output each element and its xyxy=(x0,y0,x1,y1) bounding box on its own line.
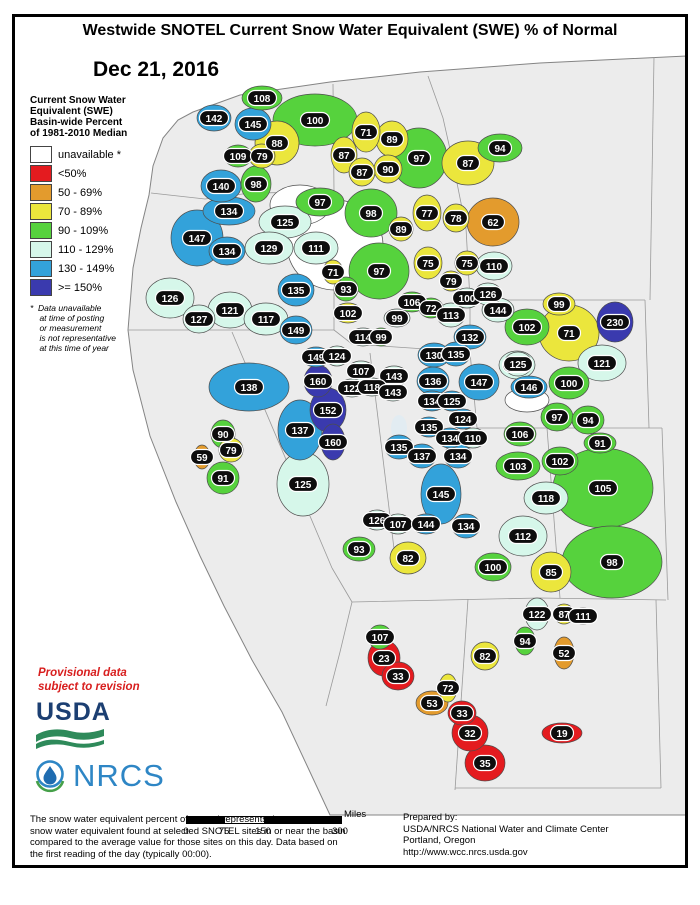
basin-badge: 100 xyxy=(555,376,584,391)
basin-badge: 100 xyxy=(479,560,508,575)
basin-badge: 98 xyxy=(601,555,624,570)
basin-percent-value: 33 xyxy=(456,709,468,720)
basin-percent-value: 121 xyxy=(594,359,611,370)
legend-title: Current Snow Water Equivalent (SWE) Basi… xyxy=(30,95,172,139)
basin-badge: 99 xyxy=(370,330,393,345)
basin-badge: 90 xyxy=(212,427,235,442)
basin-percent-value: 91 xyxy=(594,439,606,450)
legend-footnote: * Data unavailable at time of posting or… xyxy=(30,303,172,353)
basin-percent-value: 23 xyxy=(378,654,390,665)
basin-percent-value: 144 xyxy=(490,306,507,317)
basin-badge: 97 xyxy=(309,195,332,210)
basin-badge: 138 xyxy=(235,380,264,395)
basin-percent-value: 87 xyxy=(356,168,368,179)
basin-percent-value: 71 xyxy=(563,329,575,340)
basin-percent-value: 72 xyxy=(442,684,454,695)
legend-swatch xyxy=(30,222,52,239)
basin-badge: 35 xyxy=(474,756,497,771)
basin-percent-value: 97 xyxy=(373,267,385,278)
basin-badge: 71 xyxy=(355,125,378,140)
basin-badge: 146 xyxy=(515,380,544,395)
legend-swatch xyxy=(30,184,52,201)
basin-badge: 82 xyxy=(474,649,497,664)
basin-badge: 97 xyxy=(546,410,569,425)
basin-badge: 72 xyxy=(437,681,460,696)
basin-badge: 79 xyxy=(220,443,243,458)
map-date: Dec 21, 2016 xyxy=(93,58,219,82)
legend: Current Snow Water Equivalent (SWE) Basi… xyxy=(30,95,172,353)
basin-badge: 62 xyxy=(482,215,505,230)
legend-swatch xyxy=(30,241,52,258)
basin-badge: 125 xyxy=(289,477,318,492)
page-title: Westwide SNOTEL Current Snow Water Equiv… xyxy=(12,22,688,40)
basin-percent-value: 103 xyxy=(510,462,527,473)
legend-item-label: unavailable * xyxy=(58,149,121,161)
basin-badge: 102 xyxy=(513,320,542,335)
basin-badge: 137 xyxy=(286,423,315,438)
basin-badge: 144 xyxy=(412,517,441,532)
basin-percent-value: 100 xyxy=(485,563,502,574)
nrcs-logo: NRCS xyxy=(33,757,165,795)
basin-percent-value: 142 xyxy=(206,114,223,125)
basin-badge: 105 xyxy=(589,481,618,496)
basin-badge: 100 xyxy=(301,113,330,128)
basin-badge: 152 xyxy=(314,403,343,418)
footer-prepared-by: Prepared by: USDA/NRCS National Water an… xyxy=(403,812,609,858)
legend-item: unavailable * xyxy=(30,145,172,164)
basin-badge: 97 xyxy=(408,151,431,166)
basin-percent-value: 99 xyxy=(553,300,565,311)
basin-percent-value: 125 xyxy=(295,480,312,491)
basin-badge: 59 xyxy=(191,450,214,465)
basin-badge: 91 xyxy=(589,436,612,451)
basin-badge: 147 xyxy=(465,375,494,390)
basin-percent-value: 91 xyxy=(217,474,229,485)
basin-percent-value: 102 xyxy=(340,309,357,320)
basin-badge: 109 xyxy=(224,149,253,164)
basin-percent-value: 106 xyxy=(404,298,421,309)
basin-percent-value: 137 xyxy=(292,426,309,437)
basin-percent-value: 89 xyxy=(386,135,398,146)
basin-badge: 79 xyxy=(251,149,274,164)
basin-percent-value: 100 xyxy=(561,379,578,390)
basin-percent-value: 75 xyxy=(461,259,473,270)
basin-percent-value: 143 xyxy=(385,388,402,399)
basin-badge: 33 xyxy=(451,706,474,721)
basin-badge: 136 xyxy=(419,374,448,389)
basin-badge: 125 xyxy=(438,394,467,409)
basin-percent-value: 134 xyxy=(458,522,475,533)
basin-badge: 94 xyxy=(489,141,512,156)
legend-item-label: 110 - 129% xyxy=(58,244,113,256)
basin-percent-value: 93 xyxy=(353,545,365,556)
basin-badge: 102 xyxy=(546,454,575,469)
basin-percent-value: 87 xyxy=(462,159,474,170)
basin-badge: 79 xyxy=(440,274,463,289)
basin-percent-value: 138 xyxy=(241,383,258,394)
basin-badge: 98 xyxy=(245,177,268,192)
basin-badge: 147 xyxy=(183,231,212,246)
basin-badge: 126 xyxy=(474,287,503,302)
basin-percent-value: 144 xyxy=(418,520,435,531)
basin-percent-value: 93 xyxy=(340,285,352,296)
scale-unit-label: Miles xyxy=(344,809,366,820)
basin-percent-value: 62 xyxy=(487,218,499,229)
basin-percent-value: 149 xyxy=(288,326,305,337)
legend-item: 90 - 109% xyxy=(30,221,172,240)
basin-percent-value: 98 xyxy=(250,180,262,191)
basin-percent-value: 127 xyxy=(191,315,208,326)
basin-badge: 23 xyxy=(373,651,396,666)
basin-percent-value: 135 xyxy=(288,286,305,297)
basin-percent-value: 111 xyxy=(575,612,591,623)
basin-badge: 117 xyxy=(252,312,281,327)
basin-badge: 111 xyxy=(569,609,598,624)
basin-percent-value: 126 xyxy=(480,290,497,301)
basin-percent-value: 102 xyxy=(519,323,536,334)
basin-badge: 99 xyxy=(548,297,571,312)
basin-percent-value: 110 xyxy=(486,262,503,273)
basin-percent-value: 79 xyxy=(225,446,237,457)
basin-percent-value: 125 xyxy=(277,218,294,229)
basin-percent-value: 134 xyxy=(219,247,236,258)
basin-badge: 134 xyxy=(444,449,473,464)
basin-badge: 134 xyxy=(213,244,242,259)
basin-badge: 121 xyxy=(216,303,245,318)
legend-item-label: 90 - 109% xyxy=(58,225,108,237)
basin-badge: 140 xyxy=(207,179,236,194)
basin-percent-value: 77 xyxy=(421,209,433,220)
basin-percent-value: 94 xyxy=(519,637,531,648)
basin-percent-value: 146 xyxy=(521,383,538,394)
legend-swatch xyxy=(30,146,52,163)
basin-badge: 160 xyxy=(319,435,348,450)
basin-percent-value: 124 xyxy=(455,415,472,426)
basin-percent-value: 71 xyxy=(360,128,372,139)
basin-percent-value: 79 xyxy=(445,277,457,288)
legend-item-label: 70 - 89% xyxy=(58,206,102,218)
basin-percent-value: 108 xyxy=(254,94,271,105)
basin-badge: 107 xyxy=(384,517,413,532)
basin-badge: 53 xyxy=(421,696,444,711)
basin-badge: 94 xyxy=(577,413,600,428)
basin-percent-value: 87 xyxy=(338,151,350,162)
basin-percent-value: 135 xyxy=(448,350,465,361)
basin-percent-value: 78 xyxy=(450,214,462,225)
basin-percent-value: 75 xyxy=(422,259,434,270)
basin-percent-value: 99 xyxy=(391,314,403,325)
basin-badge: 102 xyxy=(334,306,363,321)
basin-percent-value: 89 xyxy=(395,225,407,236)
basin-badge: 149 xyxy=(282,323,311,338)
basin-percent-value: 135 xyxy=(421,423,438,434)
basin-percent-value: 98 xyxy=(365,209,377,220)
basin-percent-value: 97 xyxy=(413,154,425,165)
basin-percent-value: 53 xyxy=(426,699,438,710)
basin-badge: 125 xyxy=(504,357,533,372)
basin-percent-value: 85 xyxy=(545,568,557,579)
basin-badge: 111 xyxy=(302,241,331,256)
basin-percent-value: 105 xyxy=(595,484,612,495)
basin-percent-value: 121 xyxy=(222,306,239,317)
basin-percent-value: 140 xyxy=(213,182,230,193)
basin-percent-value: 132 xyxy=(462,333,479,344)
basin-badge: 142 xyxy=(200,111,229,126)
basin-percent-value: 112 xyxy=(515,532,532,543)
basin-percent-value: 99 xyxy=(375,333,387,344)
basin-badge: 110 xyxy=(480,259,509,274)
basin-badge: 90 xyxy=(377,162,400,177)
basin-percent-value: 230 xyxy=(607,318,624,329)
basin-badge: 134 xyxy=(215,204,244,219)
legend-item: >= 150% xyxy=(30,278,172,297)
basin-percent-value: 79 xyxy=(256,152,268,163)
legend-swatch xyxy=(30,279,52,296)
basin-percent-value: 134 xyxy=(442,434,459,445)
basin-percent-value: 135 xyxy=(391,443,408,454)
basin-badge: 71 xyxy=(558,326,581,341)
basin-badge: 91 xyxy=(212,471,235,486)
basin-badge: 125 xyxy=(271,215,300,230)
basin-percent-value: 107 xyxy=(372,633,389,644)
basin-badge: 75 xyxy=(417,256,440,271)
legend-swatch xyxy=(30,165,52,182)
basin-badge: 110 xyxy=(459,431,488,446)
basin-badge: 75 xyxy=(456,256,479,271)
basin-badge: 77 xyxy=(416,206,439,221)
basin-percent-value: 160 xyxy=(325,438,342,449)
basin-badge: 89 xyxy=(381,132,404,147)
basin-percent-value: 147 xyxy=(471,378,488,389)
legend-item: 110 - 129% xyxy=(30,240,172,259)
basin-badge: 135 xyxy=(442,347,471,362)
basin-percent-value: 129 xyxy=(261,244,278,255)
basin-badge: 78 xyxy=(445,211,468,226)
basin-percent-value: 111 xyxy=(308,244,324,255)
basin-badge: 230 xyxy=(601,315,630,330)
basin-badge: 112 xyxy=(509,529,538,544)
basin-percent-value: 160 xyxy=(310,377,327,388)
basin-percent-value: 145 xyxy=(433,490,450,501)
legend-item: <50% xyxy=(30,164,172,183)
legend-item-label: >= 150% xyxy=(58,282,102,294)
basin-badge: 52 xyxy=(553,646,576,661)
basin-badge: 122 xyxy=(523,607,552,622)
legend-item: 130 - 149% xyxy=(30,259,172,278)
basin-percent-value: 124 xyxy=(329,352,346,363)
basin-percent-value: 147 xyxy=(189,234,206,245)
basin-percent-value: 32 xyxy=(464,729,476,740)
basin-badge: 134 xyxy=(452,519,481,534)
basin-badge: 33 xyxy=(387,669,410,684)
basin-percent-value: 137 xyxy=(414,452,431,463)
basin-percent-value: 90 xyxy=(217,430,229,441)
basin-percent-value: 109 xyxy=(230,152,247,163)
basin-badge: 99 xyxy=(386,311,409,326)
basin-badge: 107 xyxy=(366,630,395,645)
basin-badge: 145 xyxy=(239,117,268,132)
basin-percent-value: 100 xyxy=(307,116,324,127)
basin-percent-value: 94 xyxy=(582,416,594,427)
usda-logo: USDA xyxy=(36,698,111,727)
basin-badge: 113 xyxy=(437,308,466,323)
snotel-swe-map-page: { "title": "Westwide SNOTEL Current Snow… xyxy=(0,0,700,905)
legend-items: unavailable *<50%50 - 69%70 - 89%90 - 10… xyxy=(30,145,172,297)
basin-percent-value: 97 xyxy=(551,413,563,424)
basin-percent-value: 71 xyxy=(327,268,339,279)
basin-percent-value: 106 xyxy=(512,430,529,441)
basin-percent-value: 117 xyxy=(258,315,275,326)
basin-percent-value: 125 xyxy=(444,397,461,408)
basin-badge: 145 xyxy=(427,487,456,502)
basin-percent-value: 97 xyxy=(314,198,326,209)
basin-percent-value: 134 xyxy=(450,452,467,463)
basin-percent-value: 113 xyxy=(443,311,460,322)
basin-badge: 32 xyxy=(459,726,482,741)
basin-badge: 137 xyxy=(408,449,437,464)
provisional-note: Provisional data subject to revision xyxy=(38,666,140,694)
legend-item-label: 50 - 69% xyxy=(58,187,102,199)
basin-badge: 132 xyxy=(456,330,485,345)
basin-badge: 87 xyxy=(333,148,356,163)
basin-badge: 108 xyxy=(248,91,277,106)
basin-badge: 88 xyxy=(266,136,289,151)
basin-percent-value: 35 xyxy=(479,759,491,770)
basin-badge: 160 xyxy=(304,374,333,389)
basin-percent-value: 130 xyxy=(426,351,443,362)
basin-percent-value: 122 xyxy=(529,610,546,621)
basin-badge: 82 xyxy=(397,551,420,566)
legend-item: 70 - 89% xyxy=(30,202,172,221)
basin-percent-value: 134 xyxy=(221,207,238,218)
basin-percent-value: 88 xyxy=(271,139,283,150)
basin-badge: 143 xyxy=(379,385,408,400)
basin-badge: 124 xyxy=(323,349,352,364)
basin-percent-value: 52 xyxy=(558,649,570,660)
basin-badge: 135 xyxy=(282,283,311,298)
basin-percent-value: 82 xyxy=(402,554,414,565)
basin-percent-value: 19 xyxy=(556,729,568,740)
legend-swatch xyxy=(30,203,52,220)
basin-percent-value: 136 xyxy=(425,377,442,388)
basin-badge: 107 xyxy=(347,364,376,379)
basin-percent-value: 102 xyxy=(552,457,569,468)
legend-item-label: <50% xyxy=(58,168,86,180)
basin-percent-value: 94 xyxy=(494,144,506,155)
basin-percent-value: 107 xyxy=(353,367,370,378)
basin-percent-value: 33 xyxy=(392,672,404,683)
footer-description: The snow water equivalent percent of nor… xyxy=(30,814,345,860)
basin-badge: 98 xyxy=(360,206,383,221)
basin-percent-value: 125 xyxy=(510,360,527,371)
basin-badge: 93 xyxy=(335,282,358,297)
basin-percent-value: 59 xyxy=(196,453,208,464)
basin-percent-value: 90 xyxy=(382,165,394,176)
basin-badge: 106 xyxy=(506,427,535,442)
legend-item: 50 - 69% xyxy=(30,183,172,202)
legend-swatch xyxy=(30,260,52,277)
basin-badge: 87 xyxy=(351,165,374,180)
basin-badge: 97 xyxy=(368,264,391,279)
basin-percent-value: 82 xyxy=(479,652,491,663)
legend-item-label: 130 - 149% xyxy=(58,263,114,275)
basin-percent-value: 72 xyxy=(425,304,437,315)
basin-percent-value: 107 xyxy=(390,520,407,531)
basin-badge: 144 xyxy=(484,303,513,318)
usda-swoosh-icon xyxy=(36,727,104,749)
basin-badge: 103 xyxy=(504,459,533,474)
basin-badge: 93 xyxy=(348,542,371,557)
basin-badge: 87 xyxy=(457,156,480,171)
basin-badge: 71 xyxy=(322,265,345,280)
basin-percent-value: 145 xyxy=(245,120,262,131)
basin-percent-value: 118 xyxy=(538,494,555,505)
basin-badge: 121 xyxy=(588,356,617,371)
basin-badge: 127 xyxy=(185,312,214,327)
basin-badge: 89 xyxy=(390,222,413,237)
basin-badge: 129 xyxy=(255,241,284,256)
basin-badge: 94 xyxy=(514,634,537,649)
basin-percent-value: 152 xyxy=(320,406,337,417)
basin-percent-value: 98 xyxy=(606,558,618,569)
nrcs-drop-icon xyxy=(33,757,69,795)
basin-percent-value: 143 xyxy=(386,372,403,383)
basin-percent-value: 110 xyxy=(465,434,482,445)
basin-badge: 124 xyxy=(449,412,478,427)
basin-badge: 118 xyxy=(532,491,561,506)
nrcs-wordmark: NRCS xyxy=(73,758,165,794)
basin-badge: 19 xyxy=(551,726,574,741)
basin-badge: 85 xyxy=(540,565,563,580)
